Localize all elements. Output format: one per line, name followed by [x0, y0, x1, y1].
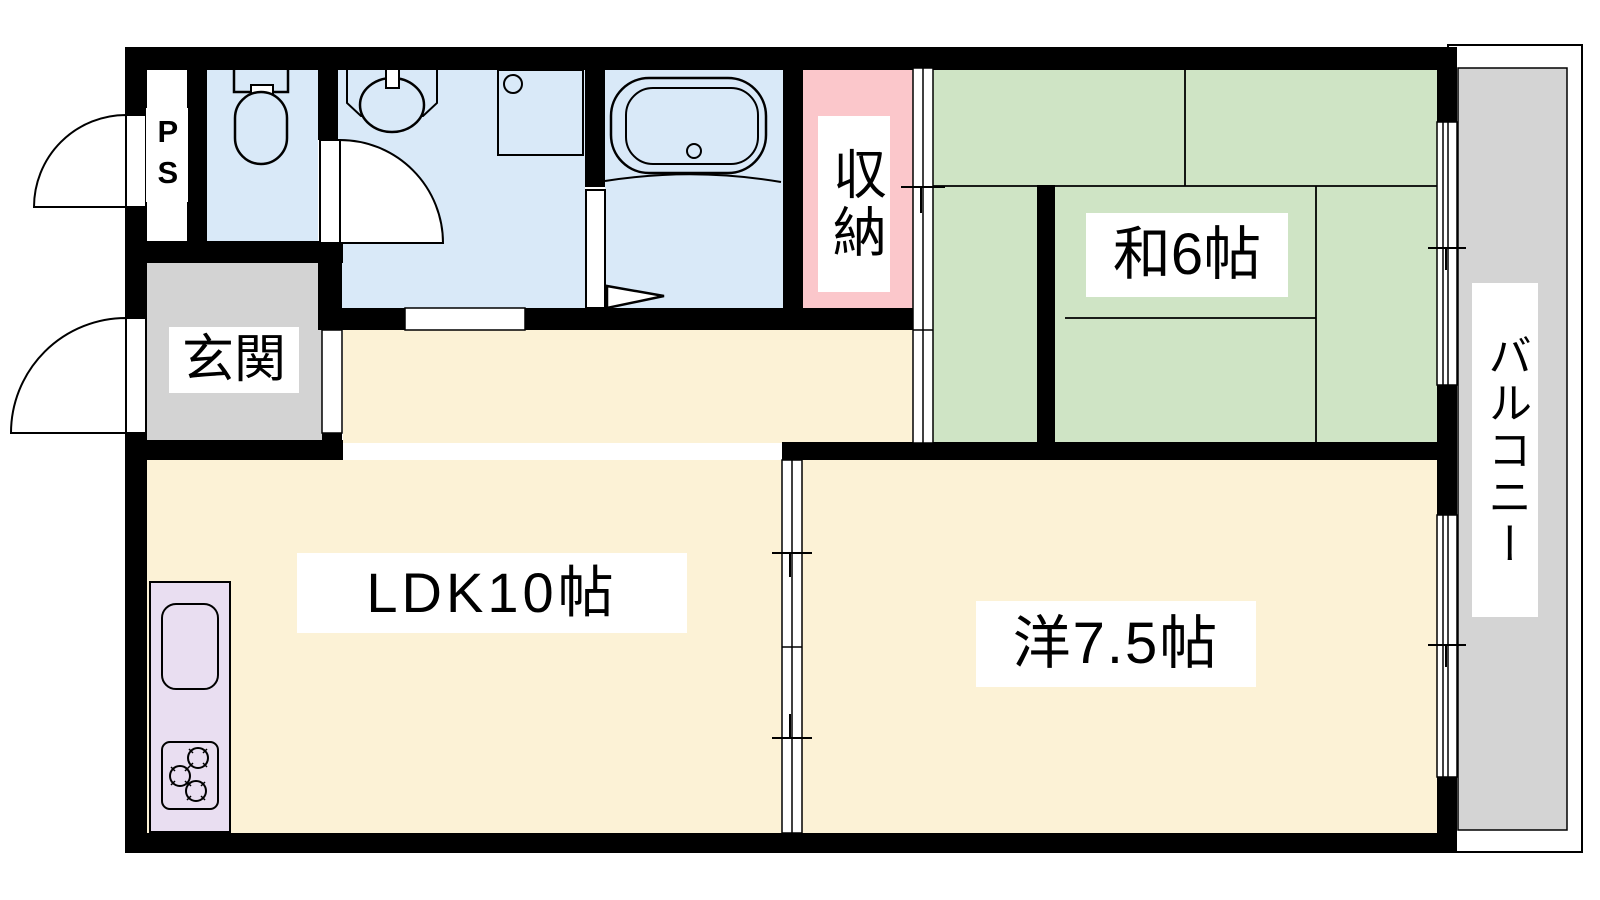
- ps-door: [34, 115, 146, 207]
- room-ldk: [147, 460, 782, 833]
- japanese-room-label: 和6帖: [1086, 213, 1288, 297]
- ldk-label: LDK10帖: [297, 553, 687, 633]
- ps-label: PS: [146, 108, 188, 202]
- entrance-opening: [322, 330, 342, 433]
- floor-plan-page: PS 玄関 収納 和6帖 LDK10帖 洋7.5帖 バルコニー: [0, 0, 1600, 900]
- room-tatami-strip: [933, 185, 1037, 442]
- entrance-door: [11, 318, 146, 433]
- storage-label: 収納: [818, 116, 890, 292]
- kitchen-counter: [150, 582, 230, 832]
- western-room-label: 洋7.5帖: [976, 601, 1256, 687]
- washroom-opening: [405, 308, 525, 330]
- room-ldk-upper: [343, 330, 913, 443]
- balcony-label: バルコニー: [1472, 283, 1538, 617]
- floor-plan-drawing: [0, 0, 1600, 900]
- entrance-label: 玄関: [169, 327, 299, 393]
